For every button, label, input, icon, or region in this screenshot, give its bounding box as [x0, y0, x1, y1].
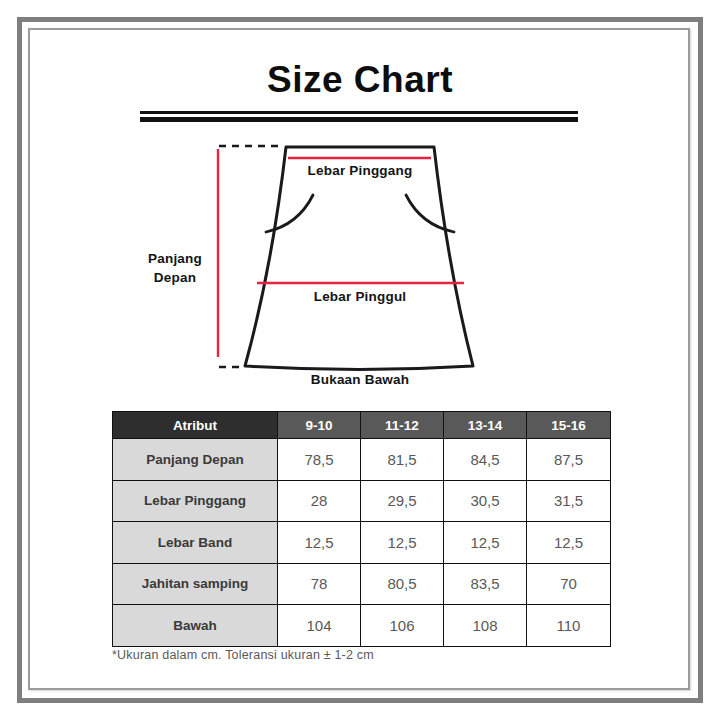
front-length-label-line2: Depan — [115, 268, 235, 287]
cell-value: 12,5 — [361, 522, 444, 564]
cell-value: 83,5 — [444, 563, 527, 605]
header-attribute: Atribut — [113, 412, 278, 439]
cell-value: 12,5 — [527, 522, 611, 564]
waist-label: Lebar Pinggang — [280, 163, 440, 178]
cell-value: 87,5 — [527, 439, 611, 481]
table-header-row: Atribut 9-10 11-12 13-14 15-16 — [113, 412, 611, 439]
table-row: Bawah 104 106 108 110 — [113, 605, 611, 647]
front-length-label: Panjang Depan — [115, 249, 235, 287]
hip-label: Lebar Pinggul — [280, 289, 440, 304]
cell-value: 80,5 — [361, 563, 444, 605]
cell-value: 29,5 — [361, 480, 444, 522]
cell-value: 12,5 — [278, 522, 361, 564]
row-label: Jahitan samping — [113, 563, 278, 605]
cell-value: 108 — [444, 605, 527, 647]
row-label: Lebar Band — [113, 522, 278, 564]
header-size-9-10: 9-10 — [278, 412, 361, 439]
header-size-15-16: 15-16 — [527, 412, 611, 439]
cell-value: 78,5 — [278, 439, 361, 481]
table-row: Panjang Depan 78,5 81,5 84,5 87,5 — [113, 439, 611, 481]
front-length-label-line1: Panjang — [115, 249, 235, 268]
header-size-13-14: 13-14 — [444, 412, 527, 439]
cell-value: 81,5 — [361, 439, 444, 481]
size-table: Atribut 9-10 11-12 13-14 15-16 Panjang D… — [112, 411, 611, 647]
cell-value: 28 — [278, 480, 361, 522]
cell-value: 12,5 — [444, 522, 527, 564]
cell-value: 30,5 — [444, 480, 527, 522]
cell-value: 84,5 — [444, 439, 527, 481]
cell-value: 106 — [361, 605, 444, 647]
row-label: Lebar Pinggang — [113, 480, 278, 522]
table-row: Lebar Band 12,5 12,5 12,5 12,5 — [113, 522, 611, 564]
skirt-outline — [245, 147, 473, 370]
footnote: *Ukuran dalam cm. Toleransi ukuran ± 1-2… — [112, 648, 532, 662]
cell-value: 110 — [527, 605, 611, 647]
bottom-opening-label: Bukaan Bawah — [280, 372, 440, 387]
row-label: Panjang Depan — [113, 439, 278, 481]
cell-value: 104 — [278, 605, 361, 647]
cell-value: 78 — [278, 563, 361, 605]
table-row: Jahitan samping 78 80,5 83,5 70 — [113, 563, 611, 605]
table-row: Lebar Pinggang 28 29,5 30,5 31,5 — [113, 480, 611, 522]
header-size-11-12: 11-12 — [361, 412, 444, 439]
cell-value: 31,5 — [527, 480, 611, 522]
cell-value: 70 — [527, 563, 611, 605]
row-label: Bawah — [113, 605, 278, 647]
